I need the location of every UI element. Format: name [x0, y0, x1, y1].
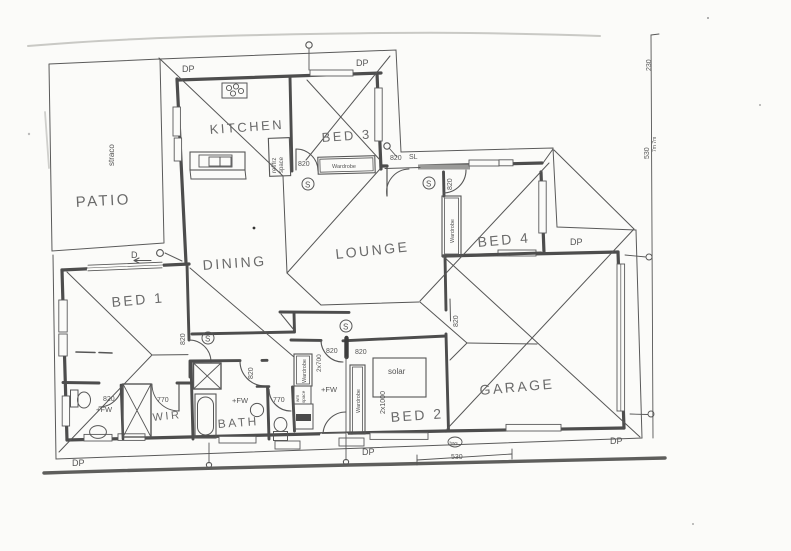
- svg-text:LOUNGE: LOUNGE: [335, 238, 410, 262]
- svg-text:+FW: +FW: [96, 405, 113, 414]
- svg-text:+FW: +FW: [232, 396, 249, 405]
- svg-text:DINING: DINING: [202, 253, 267, 273]
- svg-text:BED 4: BED 4: [477, 229, 531, 250]
- svg-text:DP: DP: [72, 458, 85, 468]
- svg-text:+FW: +FW: [321, 385, 338, 394]
- svg-text:820: 820: [180, 333, 187, 345]
- svg-text:Wardrobe: Wardrobe: [356, 389, 362, 413]
- svg-text:820: 820: [103, 396, 115, 403]
- svg-text:straco: straco: [107, 144, 116, 166]
- svg-text:7m 7m: 7m 7m: [652, 137, 658, 152]
- svg-text:SL: SL: [409, 154, 418, 161]
- svg-text:Wardrobe: Wardrobe: [302, 359, 308, 383]
- svg-text:solar: solar: [388, 367, 406, 376]
- svg-text:530: 530: [644, 147, 651, 159]
- svg-text:PATIO: PATIO: [75, 191, 131, 211]
- svg-text:BED 3: BED 3: [321, 127, 372, 145]
- svg-text:2x1000: 2x1000: [380, 391, 387, 414]
- svg-text:space: space: [279, 156, 285, 173]
- svg-text:820: 820: [248, 367, 255, 379]
- svg-text:DP: DP: [356, 58, 369, 68]
- svg-text:hws: hws: [450, 441, 459, 446]
- svg-text:S: S: [305, 181, 310, 190]
- svg-text:DP: DP: [362, 447, 375, 457]
- svg-text:ref/frz: ref/frz: [272, 158, 278, 173]
- svg-text:space: space: [301, 390, 306, 403]
- svg-text:DP: DP: [610, 436, 623, 446]
- svg-text:820: 820: [453, 315, 460, 327]
- svg-text:BED 1: BED 1: [111, 289, 165, 310]
- svg-text:KITCHEN: KITCHEN: [209, 117, 284, 137]
- svg-text:530: 530: [451, 454, 463, 461]
- svg-text:820: 820: [355, 349, 367, 356]
- svg-text:820: 820: [326, 348, 338, 355]
- svg-text:Wardrobe: Wardrobe: [450, 219, 456, 243]
- svg-text:770: 770: [273, 397, 285, 404]
- svg-text:820: 820: [447, 178, 454, 190]
- svg-text:DP: DP: [182, 64, 195, 74]
- svg-text:2x700: 2x700: [316, 354, 323, 372]
- svg-text:S: S: [205, 335, 210, 344]
- svg-text:S: S: [343, 323, 348, 332]
- svg-text:Wardrobe: Wardrobe: [332, 164, 356, 170]
- svg-text:wm: wm: [295, 395, 300, 402]
- svg-text:S: S: [426, 180, 431, 189]
- svg-text:BATH: BATH: [217, 414, 259, 431]
- svg-text:820: 820: [298, 161, 310, 168]
- svg-text:230: 230: [646, 59, 653, 71]
- svg-text:GARAGE: GARAGE: [479, 376, 555, 398]
- svg-text:DP: DP: [570, 237, 583, 247]
- svg-text:BED 2: BED 2: [390, 405, 444, 425]
- svg-text:WIR: WIR: [152, 409, 182, 424]
- svg-text:770: 770: [157, 397, 169, 404]
